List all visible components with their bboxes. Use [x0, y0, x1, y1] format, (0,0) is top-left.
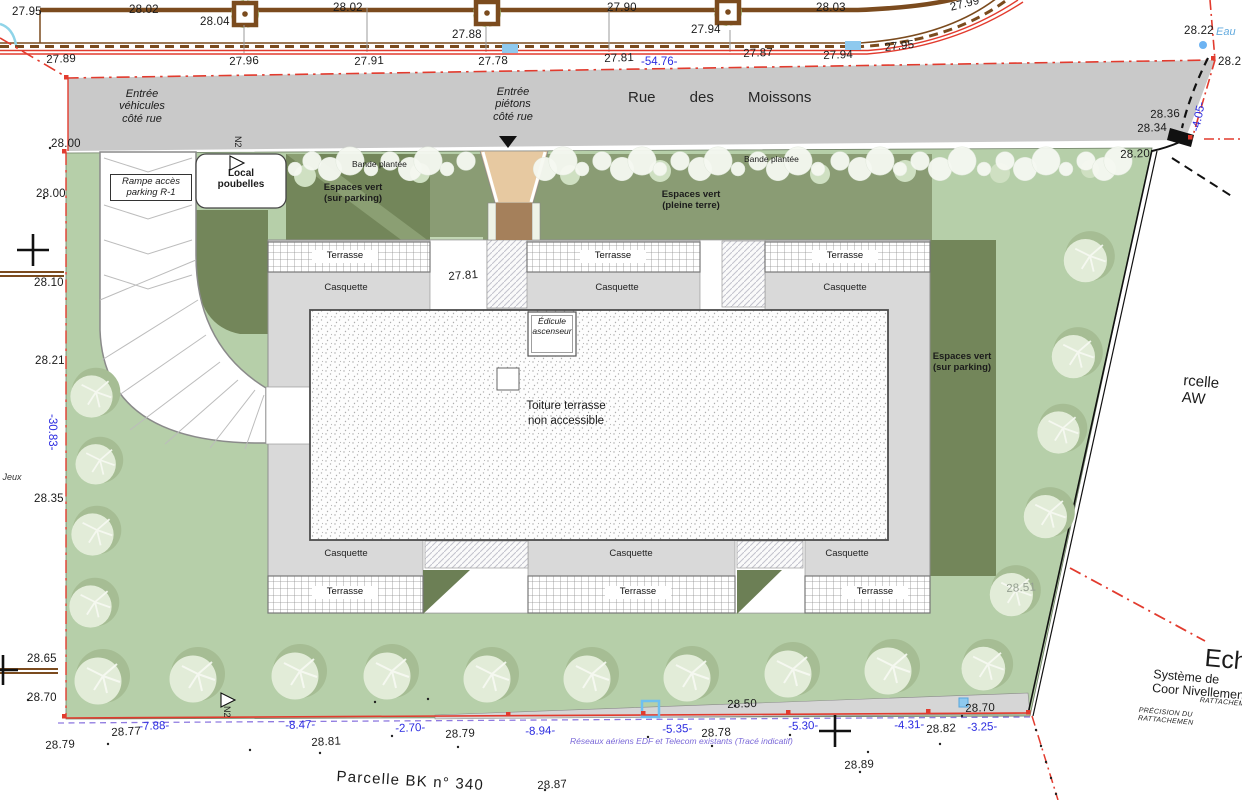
- elevation-label: 28.03: [816, 2, 846, 15]
- elevation-label: 28.04: [200, 16, 230, 29]
- casquette-label: Casquette: [316, 283, 376, 294]
- terrasse-label: Terrasse: [812, 250, 878, 263]
- elevation-label: 27.81: [448, 269, 479, 284]
- elevation-label: 27.99: [949, 0, 981, 14]
- elevation-label: 28.34: [1137, 122, 1167, 136]
- casquette-label: Casquette: [316, 549, 376, 560]
- casquette-label: Casquette: [815, 283, 875, 294]
- elevation-label: 28.70: [27, 692, 57, 705]
- water-label: Eau: [1216, 26, 1236, 38]
- elevation-label: 28.70: [965, 702, 995, 716]
- elevation-label: 28.78: [701, 726, 731, 740]
- elevation-label: 28.10: [34, 277, 64, 290]
- elevation-label: 27.95: [884, 39, 915, 55]
- elevation-label: 27.89: [46, 53, 76, 67]
- elevation-label: 28.00: [36, 188, 66, 201]
- green-space-full-soil-label: Espaces vert (pleine terre): [652, 190, 730, 211]
- n2-label-bottom: N2: [222, 706, 232, 718]
- elevation-label: 28.02: [333, 2, 363, 15]
- dimension-label: -5.30-: [788, 720, 818, 734]
- elevation-label: 28.36: [1150, 108, 1180, 122]
- casquette-label: Casquette: [587, 283, 647, 294]
- planted-strip-right-label: Bande plantée: [744, 155, 799, 165]
- vehicle-entrance-label: Entrée véhicules côté rue: [102, 88, 182, 125]
- dimension-label: -30.83-: [45, 414, 58, 450]
- dimension-label: -4.05-: [1190, 101, 1209, 133]
- dimension-label: -54.76-: [641, 56, 677, 69]
- elevation-label: 27.81: [604, 52, 634, 66]
- dimension-label: -8.94-: [525, 725, 555, 739]
- dimension-label: -8.47-: [285, 719, 315, 733]
- dimension-label: -2.70-: [395, 722, 425, 736]
- edf-telecom-note: Réseaux aériens EDF et Telecom existants…: [570, 737, 793, 747]
- roof-terrace-label: Toiture terrasse non accessible: [514, 399, 618, 429]
- elevation-label: 28.00: [51, 138, 81, 151]
- parcel-aw-label: rcelle AW: [1181, 373, 1242, 412]
- street-name-label: Rue des Moissons: [628, 90, 811, 107]
- elevation-label: 27.88: [452, 29, 482, 42]
- elevator-shed-label: Édicule ascenseur: [528, 317, 576, 336]
- elevation-label: 27.94: [691, 24, 721, 37]
- elevation-label: 28.20: [1120, 148, 1150, 162]
- elevation-label: 28.87: [537, 778, 567, 792]
- elevation-label: 27.91: [354, 55, 384, 69]
- elevation-label: 28.50: [727, 698, 757, 712]
- casquette-label: Casquette: [601, 549, 661, 560]
- planted-strip-left-label: Bande plantée: [352, 160, 407, 170]
- terrasse-label: Terrasse: [312, 250, 378, 263]
- ramp-label: Rampe accès parking R-1: [110, 174, 192, 201]
- parcel-bk-label: Parcelle BK n° 340: [336, 769, 484, 795]
- elevation-label: 28.51: [1006, 581, 1036, 595]
- elevation-label: 28.22: [1184, 25, 1214, 38]
- elevation-label: 27.87: [743, 47, 773, 61]
- elevation-label: 28.81: [311, 735, 341, 749]
- casquette-label: Casquette: [817, 549, 877, 560]
- elevation-label: 28.2: [1218, 56, 1241, 69]
- n2-label-top: N2: [233, 136, 243, 148]
- elevation-label: 28.77: [111, 725, 141, 739]
- elevation-label: 27.96: [229, 55, 259, 69]
- elevation-label: 28.02: [129, 4, 159, 17]
- labels-layer: Rue des Moissons Entrée véhicules côté r…: [0, 0, 1242, 800]
- elevation-label: 28.79: [445, 727, 475, 741]
- terrasse-label: Terrasse: [580, 250, 646, 263]
- elevation-label: 28.35: [34, 493, 64, 506]
- attachment-precision-label: PRÉCISION DU RATTACHEMEN: [1138, 707, 1242, 732]
- elevation-label: 27.78: [478, 55, 508, 69]
- green-space-parking-left-label: Espaces vert (sur parking): [314, 183, 392, 204]
- elevation-label: 27.90: [607, 2, 637, 15]
- playground-label: e Jeux: [0, 472, 22, 482]
- elevation-label: 28.89: [844, 758, 874, 772]
- elevation-label: 28.79: [45, 738, 75, 752]
- terrasse-label: Terrasse: [605, 586, 671, 599]
- green-space-parking-right-label: Espaces vert (sur parking): [924, 352, 1000, 373]
- dimension-label: -7.88-: [139, 720, 169, 734]
- dimension-label: -5.35-: [662, 723, 692, 737]
- bin-store-label: Local poubelles: [206, 168, 276, 190]
- site-plan: Rue des Moissons Entrée véhicules côté r…: [0, 0, 1242, 800]
- dimension-label: -4.31-: [894, 719, 924, 733]
- elevation-label: 27.95: [12, 6, 42, 19]
- elevation-label: 28.65: [27, 653, 57, 666]
- dimension-label: -3.25-: [967, 721, 997, 735]
- elevation-label: 28.21: [35, 355, 65, 368]
- pedestrian-entrance-label: Entrée piétons côté rue: [476, 86, 550, 123]
- terrasse-label: Terrasse: [842, 586, 908, 599]
- elevation-label: 28.82: [926, 722, 956, 736]
- terrasse-label: Terrasse: [312, 586, 378, 599]
- elevation-label: 27.94: [823, 49, 853, 63]
